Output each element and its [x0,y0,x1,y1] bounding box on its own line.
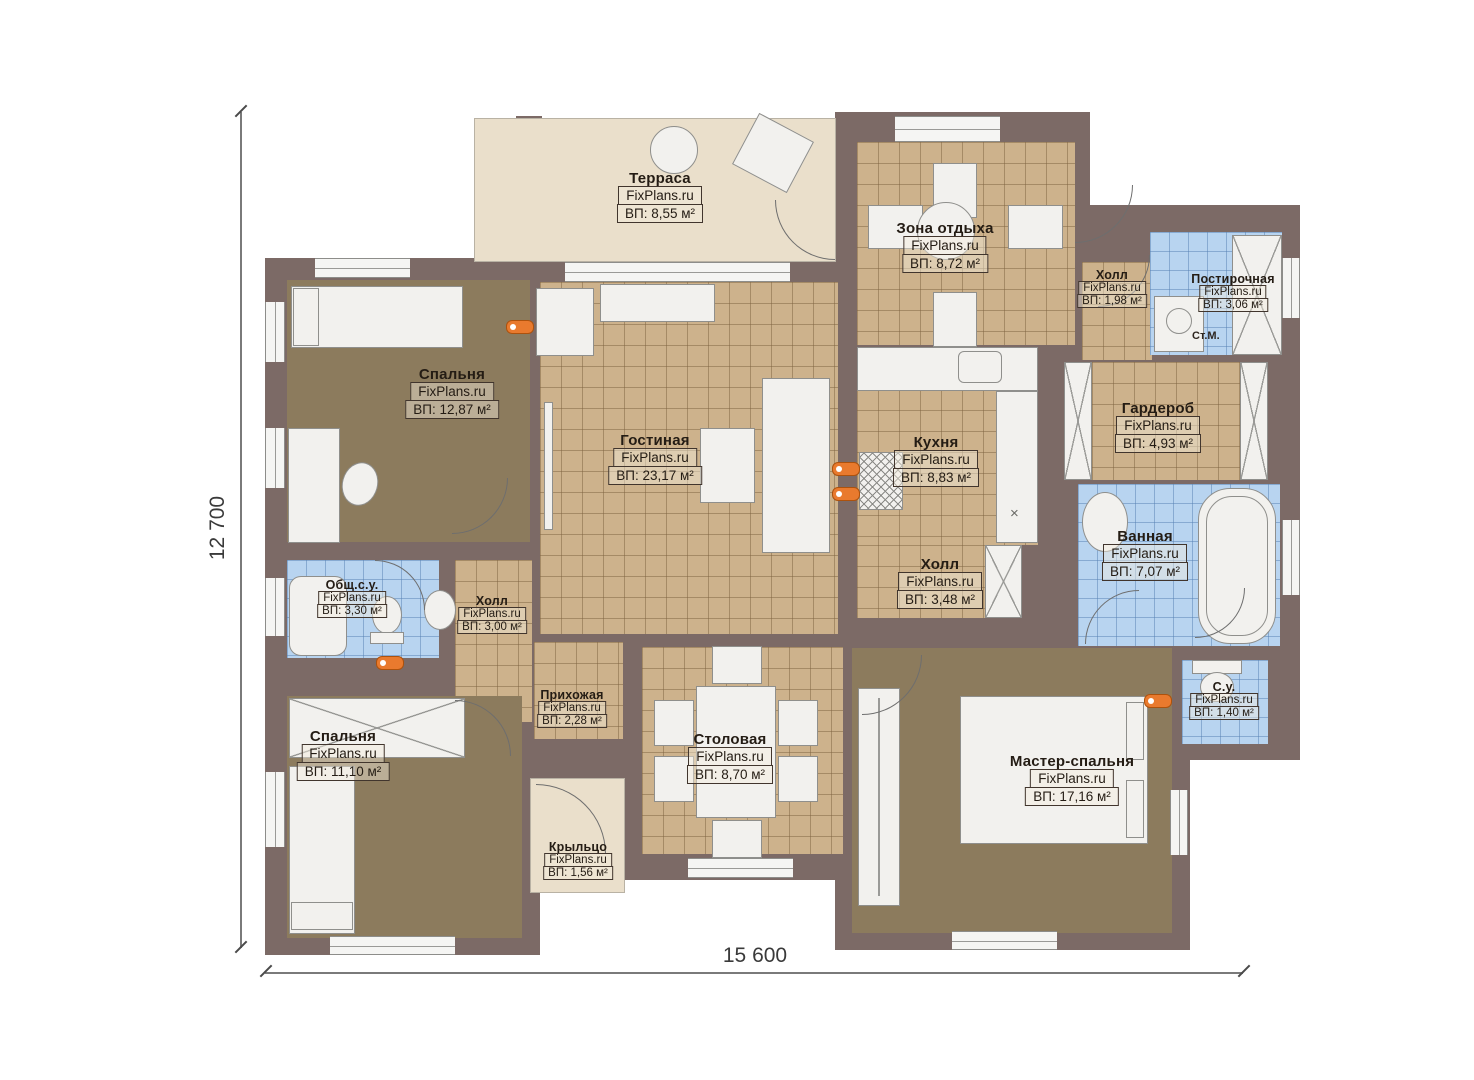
window [330,936,455,955]
pillow [1126,702,1144,760]
toilet-tank [370,632,404,644]
window [895,116,1000,142]
label-rest-area: Зона отдыха FixPlans.ru ВП: 8,72 м² [896,220,993,273]
dimension-tick [1238,965,1251,978]
room-area: ВП: 1,98 м² [1077,294,1147,308]
room-area: ВП: 4,93 м² [1115,434,1201,453]
label-hall-left: Холл FixPlans.ru ВП: 3,00 м² [457,594,527,634]
label-porch: Крыльцо FixPlans.ru ВП: 1,56 м² [543,840,613,880]
watermark: FixPlans.ru [1103,544,1187,563]
watermark: FixPlans.ru [410,382,494,401]
washing-machine-drum [1166,308,1192,334]
label-dining-room: Столовая FixPlans.ru ВП: 8,70 м² [687,731,773,784]
tv-panel [544,402,553,530]
room-area: ВП: 3,48 м² [897,590,983,609]
radiator [832,462,860,476]
counter-cross-mark: × [1010,505,1019,522]
dimension-tick [260,965,273,978]
label-entry-hall: Прихожая FixPlans.ru ВП: 2,28 м² [537,688,607,728]
dimension-line-horizontal [265,972,1243,974]
room-name: Общ.с.у. [326,578,379,592]
window [952,931,1057,950]
washing-machine-note: Ст.М. [1192,330,1220,342]
window [565,262,790,282]
label-master-bedroom: Мастер-спальня FixPlans.ru ВП: 17,16 м² [1010,753,1134,806]
window [1282,520,1300,595]
window [688,858,793,878]
room-area: ВП: 12,87 м² [405,400,499,419]
label-bathroom: Ванная FixPlans.ru ВП: 7,07 м² [1102,528,1188,581]
window [265,302,285,362]
cabinet [600,284,715,322]
room-area: ВП: 8,70 м² [687,765,773,784]
watermark: FixPlans.ru [301,744,385,763]
watermark: FixPlans.ru [688,747,772,766]
room-name: Постирочная [1191,272,1274,286]
watermark: FixPlans.ru [618,186,702,205]
closet [1240,362,1268,480]
label-hall-center: Холл FixPlans.ru ВП: 3,48 м² [897,556,983,609]
watermark: FixPlans.ru [1078,281,1146,295]
room-area: ВП: 3,30 м² [317,604,387,618]
watermark: FixPlans.ru [538,701,606,715]
room-name: Крыльцо [549,840,607,854]
floor-plan-canvas: × Терраса FixPl [0,0,1474,1080]
sink [424,590,456,630]
room-name: Гардероб [1122,400,1195,417]
window [1170,790,1188,855]
room-area: ВП: 23,17 м² [608,466,702,485]
room-area: ВП: 17,16 м² [1025,787,1119,806]
round-table [650,126,698,174]
watermark: FixPlans.ru [318,591,386,605]
room-name: Ванная [1117,528,1173,545]
watermark: FixPlans.ru [1030,769,1114,788]
room-name: Терраса [629,170,691,187]
room-area: ВП: 1,56 м² [543,866,613,880]
window [265,428,285,488]
room-area: ВП: 1,40 м² [1189,706,1259,720]
radiator [832,487,860,501]
room-name: Зона отдыха [896,220,993,237]
label-laundry: Постирочная FixPlans.ru ВП: 3,06 м² [1191,272,1274,312]
chair [933,292,977,347]
coffee-table [700,428,755,503]
watermark: FixPlans.ru [1199,285,1267,299]
watermark: FixPlans.ru [458,607,526,621]
label-kitchen: Кухня FixPlans.ru ВП: 8,83 м² [893,434,979,487]
pillow [293,288,319,346]
watermark: FixPlans.ru [544,853,612,867]
room-area: ВП: 8,55 м² [617,204,703,223]
dimension-line-vertical [240,112,242,948]
label-bedroom-2: Спальня FixPlans.ru ВП: 11,10 м² [297,728,390,781]
label-hall-top: Холл FixPlans.ru ВП: 1,98 м² [1077,268,1147,308]
room-name: Холл [1096,268,1128,282]
room-name: Мастер-спальня [1010,753,1134,770]
room-area: ВП: 7,07 м² [1102,562,1188,581]
wardrobe-rail [878,698,880,896]
room-name: Гостиная [620,432,689,449]
window [315,258,410,278]
room-name: Спальня [419,366,485,383]
room-area: ВП: 8,83 м² [893,468,979,487]
watermark: FixPlans.ru [1116,416,1200,435]
label-wc: С.у. FixPlans.ru ВП: 1,40 м² [1189,680,1259,720]
closet [985,545,1022,618]
chair [712,646,762,684]
radiator [1144,694,1172,708]
room-name: Холл [476,594,508,608]
kitchen-sink [958,351,1002,383]
room-name: Спальня [310,728,376,745]
dimension-width-label: 15 600 [695,944,815,968]
room-name: Холл [921,556,959,573]
watermark: FixPlans.ru [898,572,982,591]
window [265,578,285,636]
closet [1064,362,1092,480]
label-terrace: Терраса FixPlans.ru ВП: 8,55 м² [617,170,703,223]
watermark: FixPlans.ru [613,448,697,467]
room-area: ВП: 11,10 м² [297,762,390,781]
room-name: Столовая [694,731,767,748]
watermark: FixPlans.ru [894,450,978,469]
chair [712,820,762,858]
chair [1008,205,1063,249]
watermark: FixPlans.ru [1190,693,1258,707]
label-wardrobe: Гардероб FixPlans.ru ВП: 4,93 м² [1115,400,1201,453]
watermark: FixPlans.ru [903,236,987,255]
radiator [376,656,404,670]
desk [288,428,340,543]
room-area: ВП: 8,72 м² [902,254,988,273]
room-name: С.у. [1213,680,1236,694]
room-area: ВП: 3,00 м² [457,620,527,634]
radiator [506,320,534,334]
room-name: Прихожая [540,688,603,702]
window [265,772,285,847]
sofa [762,378,830,553]
room-area: ВП: 3,06 м² [1198,298,1268,312]
label-bedroom-1: Спальня FixPlans.ru ВП: 12,87 м² [405,366,499,419]
room-name: Кухня [914,434,959,451]
dimension-height-label: 12 700 [206,468,230,588]
label-shared-wc: Общ.с.у. FixPlans.ru ВП: 3,30 м² [317,578,387,618]
window [1282,258,1300,318]
room-area: ВП: 2,28 м² [537,714,607,728]
fireplace [536,288,594,356]
label-living-room: Гостиная FixPlans.ru ВП: 23,17 м² [608,432,702,485]
pillow [291,902,353,930]
chair [778,756,818,802]
kitchen-counter [857,347,1038,391]
chair [778,700,818,746]
